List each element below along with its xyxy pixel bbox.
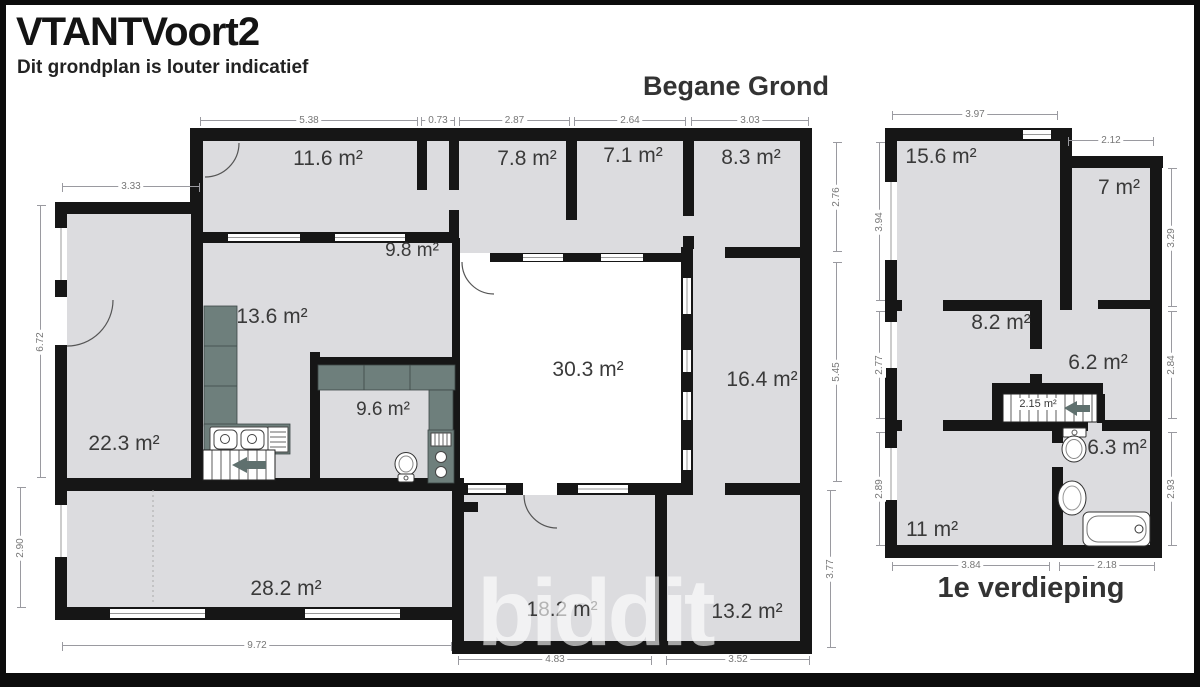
room-label: 2.15 m² bbox=[1017, 398, 1058, 410]
bathtub-icon bbox=[1083, 512, 1150, 546]
dimension: 2.89 bbox=[879, 432, 880, 546]
dimension: 2.76 bbox=[836, 142, 837, 252]
dimension: 5.38 bbox=[200, 120, 418, 121]
dimension: 0.73 bbox=[421, 120, 455, 121]
room-label: 9.6 m² bbox=[356, 399, 410, 421]
room-label: 8.2 m² bbox=[971, 311, 1031, 335]
dimension: 2.12 bbox=[1068, 140, 1154, 141]
dimension: 9.72 bbox=[62, 645, 452, 646]
page-subtitle: Dit grondplan is louter indicatief bbox=[17, 57, 308, 79]
frame-border-right bbox=[1194, 0, 1200, 687]
frame-border-left bbox=[0, 0, 6, 687]
dimension: 3.29 bbox=[1171, 168, 1172, 307]
dimension: 6.72 bbox=[40, 205, 41, 478]
room-label: 9.8 m² bbox=[385, 240, 439, 262]
page-title: VTANTVoort2 bbox=[16, 10, 259, 55]
dimension: 2.87 bbox=[459, 120, 570, 121]
stairs-icon bbox=[203, 450, 275, 480]
dimension: 2.18 bbox=[1059, 565, 1155, 566]
room-label: 7.8 m² bbox=[497, 147, 557, 171]
dimension: 3.97 bbox=[892, 114, 1058, 115]
room-label: 15.6 m² bbox=[905, 145, 976, 169]
dimension: 3.33 bbox=[62, 186, 200, 187]
toilet-icon bbox=[1062, 428, 1086, 462]
room-label: 6.2 m² bbox=[1068, 351, 1128, 375]
dimension: 2.93 bbox=[1171, 432, 1172, 546]
room-label: 13.2 m² bbox=[711, 600, 782, 624]
dimension: 3.03 bbox=[691, 120, 809, 121]
washbasin-icon bbox=[1058, 481, 1086, 515]
dimension: 3.84 bbox=[892, 565, 1050, 566]
dimension: 2.84 bbox=[1171, 311, 1172, 419]
dimension: 2.64 bbox=[574, 120, 686, 121]
frame-border-top bbox=[0, 0, 1200, 5]
frame-border-bottom bbox=[0, 673, 1200, 687]
dimension: 3.77 bbox=[830, 490, 831, 648]
toilet-icon bbox=[395, 453, 417, 483]
room-label: 7 m² bbox=[1098, 176, 1140, 200]
dimension: 3.94 bbox=[879, 142, 880, 301]
room-label: 30.3 m² bbox=[552, 358, 623, 382]
dimension: 2.90 bbox=[20, 487, 21, 608]
floorplan-page: VTANTVoort2 Dit grondplan is louter indi… bbox=[0, 0, 1200, 687]
first-floor-title: 1e verdieping bbox=[938, 572, 1125, 605]
room-label: 11.6 m² bbox=[293, 147, 363, 171]
dimension: 5.45 bbox=[836, 262, 837, 482]
room-label: 6.3 m² bbox=[1087, 436, 1147, 460]
room-label: 13.6 m² bbox=[236, 305, 307, 329]
room-label: 11 m² bbox=[906, 518, 958, 542]
ground-floor-title: Begane Grond bbox=[643, 71, 829, 102]
room-label: 22.3 m² bbox=[88, 432, 159, 456]
dimension: 2.77 bbox=[879, 311, 880, 419]
watermark: biddit bbox=[477, 566, 712, 661]
room-label: 16.4 m² bbox=[726, 368, 797, 392]
kitchen-sink-icon bbox=[210, 427, 288, 452]
room-label: 7.1 m² bbox=[603, 144, 663, 168]
room-label: 8.3 m² bbox=[721, 146, 781, 170]
room-label: 28.2 m² bbox=[250, 577, 321, 601]
